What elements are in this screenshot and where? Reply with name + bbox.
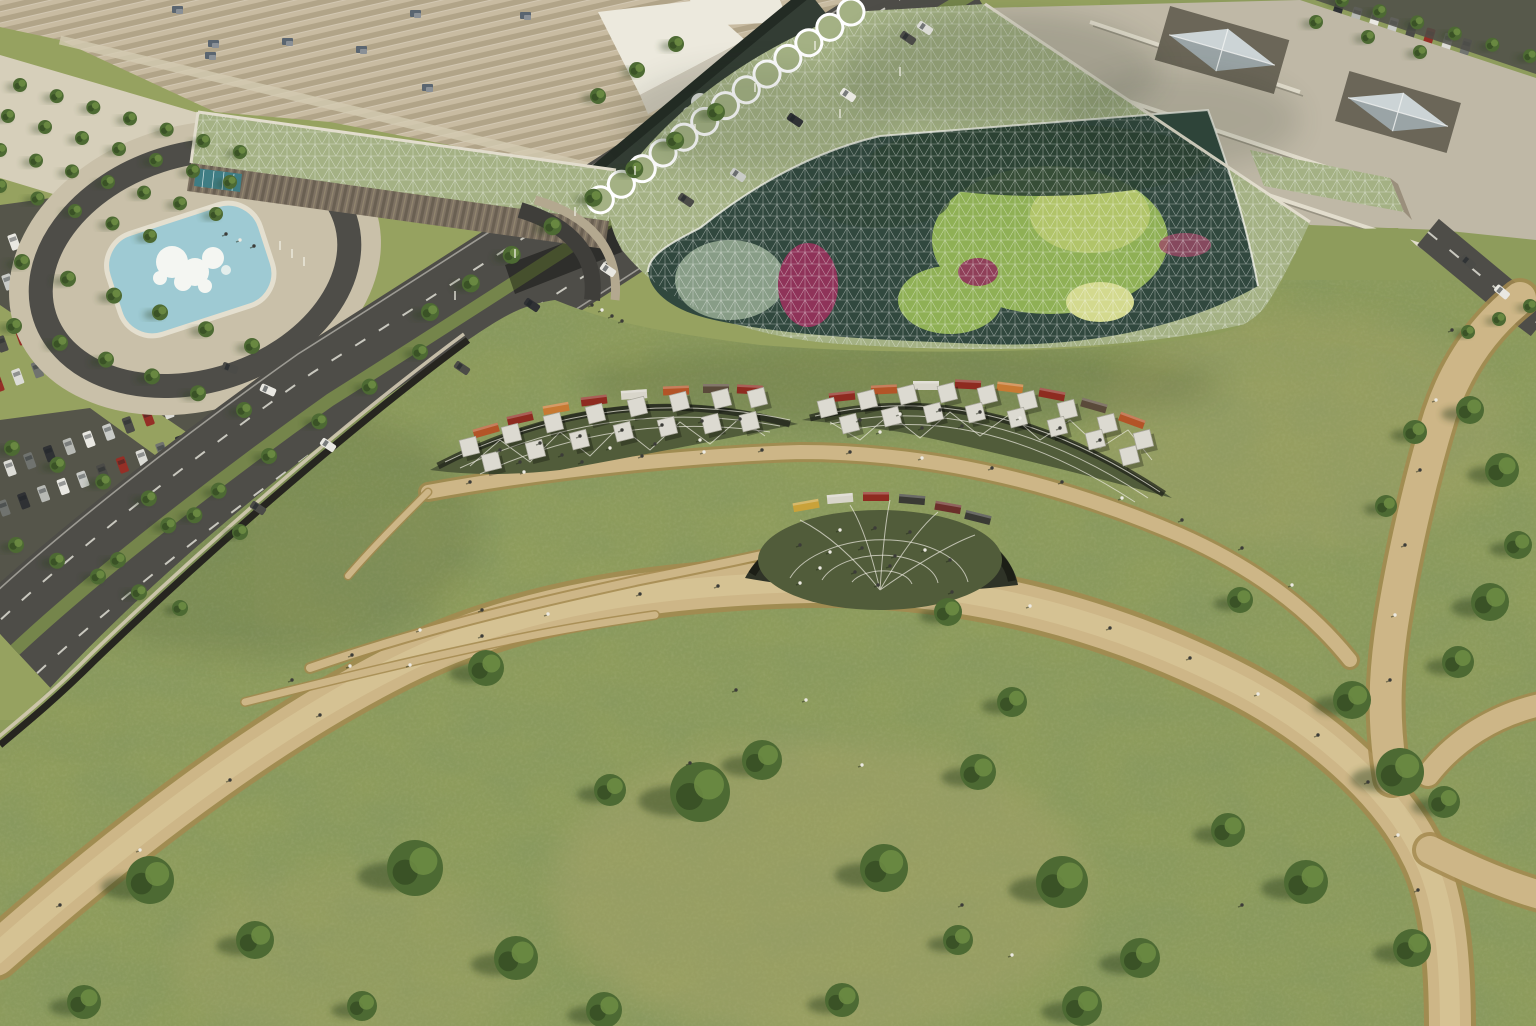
cloud-shadow [620, 65, 900, 175]
cloud-shadow [1060, 70, 1300, 170]
aerial-site-rendering [0, 0, 1536, 1026]
dome-floor [758, 510, 1002, 610]
dry-grass-patch [550, 740, 1090, 1026]
